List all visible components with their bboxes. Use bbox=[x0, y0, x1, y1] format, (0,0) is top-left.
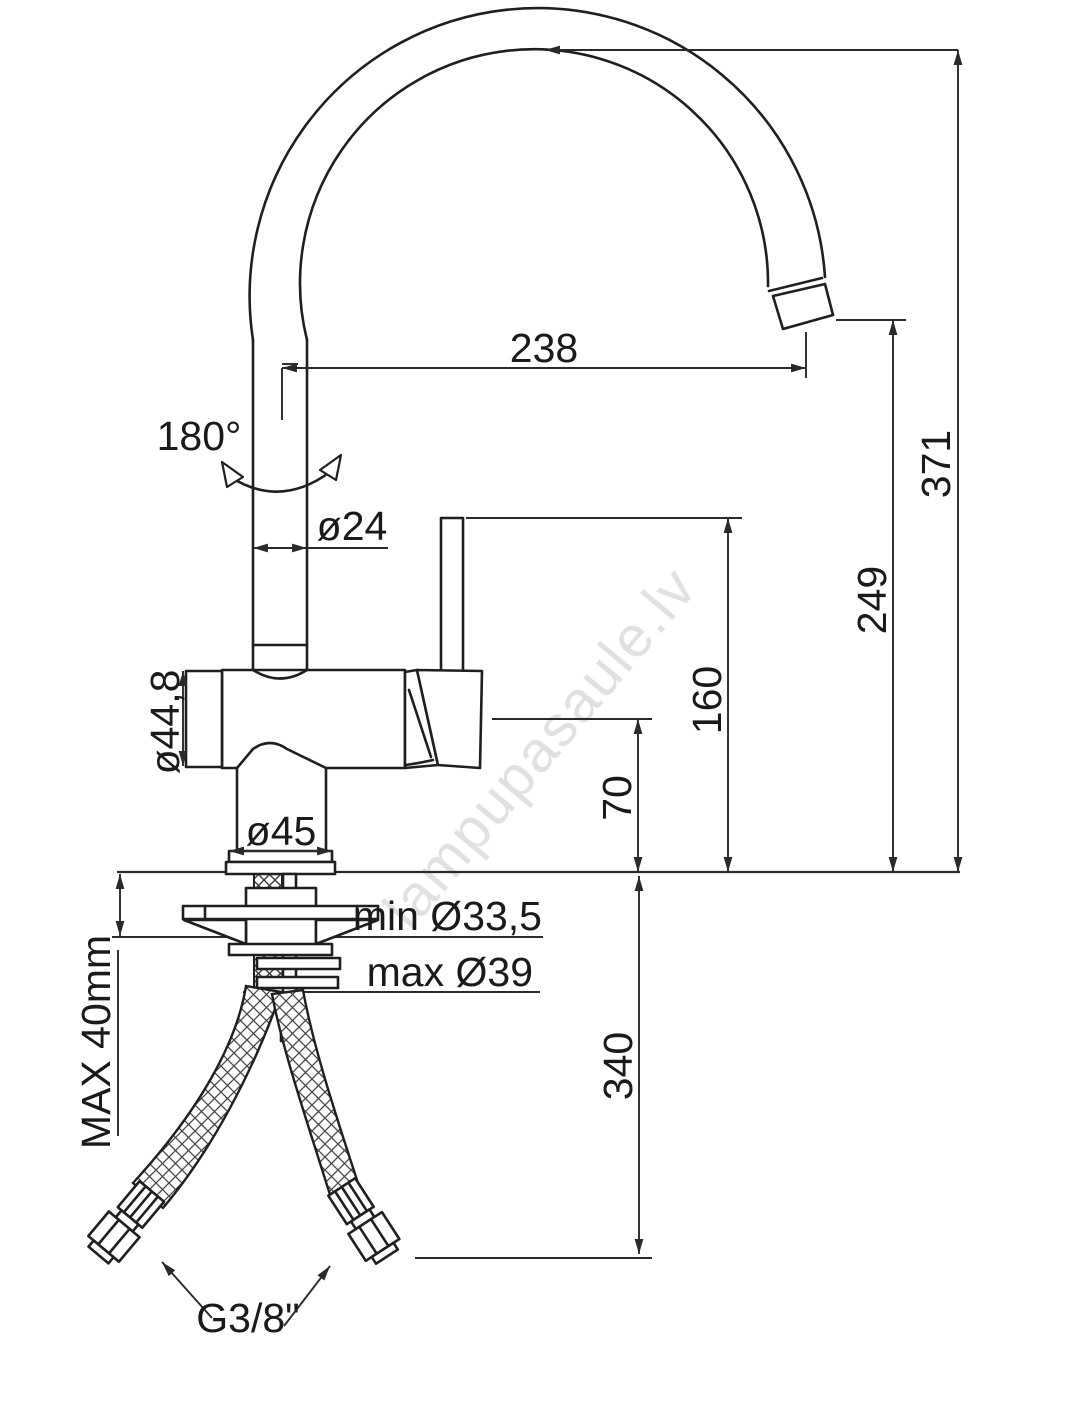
spout-arc-outer bbox=[250, 8, 825, 340]
spout-pipe-fill bbox=[254, 341, 306, 669]
dim-label-spout-height: 249 bbox=[849, 566, 895, 634]
mounting-flange-bar bbox=[183, 906, 378, 919]
hose-right bbox=[272, 990, 358, 1201]
mixer-body bbox=[222, 670, 405, 768]
handle-rod bbox=[441, 518, 463, 671]
dim-label-base-dia: ø45 bbox=[246, 808, 317, 854]
dim-label-hole-min: min Ø33,5 bbox=[353, 893, 542, 939]
flange-wedge-left bbox=[184, 920, 246, 944]
faucet-technical-drawing: lampupasaule.lv bbox=[0, 0, 1080, 1410]
rubber-washer bbox=[229, 944, 332, 955]
dimension-labels: 238 371 249 160 70 340 180° ø24 ø44,8 ø4… bbox=[73, 325, 959, 1341]
dim-label-deck-max: MAX 40mm bbox=[73, 935, 119, 1149]
dim-label-reach: 238 bbox=[510, 325, 578, 371]
fixing-nut-upper bbox=[257, 958, 340, 969]
dim-label-swivel: 180° bbox=[157, 413, 242, 459]
hose-left bbox=[133, 986, 281, 1208]
dim-label-hose-length: 340 bbox=[595, 1032, 641, 1100]
body-left-cap bbox=[186, 671, 222, 767]
dim-label-body-dia: ø44,8 bbox=[142, 670, 188, 775]
supply-hoses-group bbox=[83, 986, 404, 1268]
dim-label-thread: G3/8" bbox=[196, 1295, 299, 1341]
dim-label-body-height: 70 bbox=[594, 775, 640, 821]
fixing-nut-lower bbox=[257, 977, 338, 988]
aerator-tip bbox=[773, 284, 833, 329]
spout-arc-inner bbox=[300, 49, 768, 340]
hose-fitting-right bbox=[325, 1176, 404, 1267]
dim-label-spout-dia: ø24 bbox=[317, 503, 388, 549]
dim-label-total-height: 371 bbox=[913, 430, 959, 498]
dim-label-handle-height: 160 bbox=[684, 666, 730, 734]
faucet-technical-drawing-page: lampupasaule.lv bbox=[0, 0, 1080, 1410]
dim-label-hole-max: max Ø39 bbox=[367, 949, 533, 995]
escutcheon-plate-lower bbox=[226, 862, 335, 874]
